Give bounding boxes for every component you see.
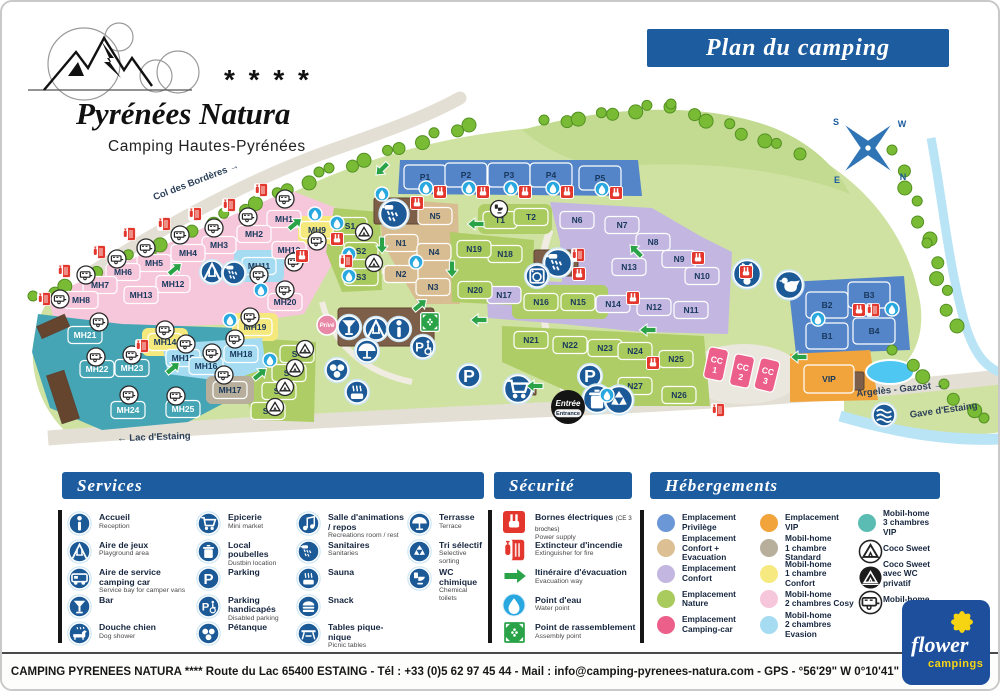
security-item: Bornes électriques (CE 3 broches)Power s… xyxy=(502,510,637,538)
power-supply-icon xyxy=(853,304,866,317)
security-legend-title: Sécurité xyxy=(494,472,632,499)
color-swatch xyxy=(760,590,778,608)
service-item: Douche chienDog shower xyxy=(66,620,192,648)
water-point-icon xyxy=(546,181,560,195)
water-point-icon xyxy=(330,216,344,230)
color-swatch xyxy=(760,514,778,532)
water-point-icon xyxy=(409,255,423,269)
water-point-icon xyxy=(308,207,322,221)
svg-text:N12: N12 xyxy=(646,302,662,312)
accommodation-item: Mobil-home 2 chambres Cosy xyxy=(760,587,854,613)
mobil-home-icon xyxy=(276,190,294,208)
svg-text:MH13: MH13 xyxy=(130,290,153,300)
fire-extinguisher-icon xyxy=(255,184,268,197)
tree-icon xyxy=(314,167,324,177)
plot-N18: N18 xyxy=(488,246,522,263)
svg-text:N25: N25 xyxy=(668,354,684,364)
color-swatch xyxy=(657,565,675,583)
plot-N21: N21 xyxy=(514,332,548,349)
evac-icon xyxy=(502,565,529,592)
park-icon: P xyxy=(195,565,222,592)
service-item: P Parking handicapésDisabled parking xyxy=(195,593,293,621)
prive-badge: Privé xyxy=(317,315,337,335)
logo-title: Pyrénées Natura xyxy=(76,96,290,132)
svg-text:MH21: MH21 xyxy=(74,330,97,340)
brand-line1: flower xyxy=(911,632,968,658)
color-swatch xyxy=(657,590,675,608)
svg-text:N4: N4 xyxy=(429,247,440,257)
plot-MH2: MH2 xyxy=(237,226,271,243)
fire-extinguisher-icon xyxy=(867,304,880,317)
fire-extinguisher-icon xyxy=(712,404,725,417)
plot-N1: N1 xyxy=(384,235,418,252)
picnic-icon xyxy=(295,620,322,647)
sanit-icon xyxy=(295,538,322,565)
tree-icon xyxy=(979,413,989,423)
svg-text:N16: N16 xyxy=(533,297,549,307)
color-swatch xyxy=(760,539,778,557)
tree-icon xyxy=(642,100,652,110)
tree-icon xyxy=(596,108,606,118)
camper-icon xyxy=(66,565,93,592)
security-item: Itinéraire d'évacuation Evacuation way xyxy=(502,565,637,593)
color-swatch xyxy=(657,514,675,532)
tree-icon xyxy=(539,115,549,125)
water-point-icon xyxy=(375,187,389,201)
water-point-icon xyxy=(342,269,356,283)
svg-text:N5: N5 xyxy=(430,211,441,221)
svg-text:N13: N13 xyxy=(621,262,637,272)
services-column-1: AccueilReception Aire de jeuxPlayground … xyxy=(66,510,192,648)
accommodation-item: Emplacement Camping-car xyxy=(657,612,757,638)
plot-N25: N25 xyxy=(659,351,693,368)
svg-text:N20: N20 xyxy=(467,285,483,295)
power-icon xyxy=(502,510,529,537)
water-icon xyxy=(502,593,529,620)
water-point-icon xyxy=(419,181,433,195)
svg-text:S3: S3 xyxy=(356,272,367,282)
tree-icon xyxy=(629,105,643,119)
plot-MH13: MH13 xyxy=(124,287,158,304)
svg-text:P: P xyxy=(463,366,475,386)
tree-icon xyxy=(429,128,439,138)
power-supply-icon xyxy=(573,268,586,281)
security-item: Point de rassemblement Assembly point xyxy=(502,620,637,648)
service-item: Pétanque xyxy=(195,620,293,648)
water-point-icon xyxy=(600,388,614,402)
coco-icon xyxy=(858,539,876,557)
plot-MH3: MH3 xyxy=(202,237,236,254)
svg-text:N14: N14 xyxy=(605,299,621,309)
svg-text:B2: B2 xyxy=(822,300,833,310)
mobil-home-icon xyxy=(90,313,108,331)
plot-N8: N8 xyxy=(636,234,670,251)
plot-N23: N23 xyxy=(588,340,622,357)
svg-text:P: P xyxy=(584,366,596,386)
tree-icon xyxy=(922,238,932,248)
phand-icon: P xyxy=(410,334,436,360)
tree-icon xyxy=(357,153,371,167)
plot-N5: N5 xyxy=(418,208,452,225)
svg-text:S2: S2 xyxy=(356,246,367,256)
brand-line2: campings xyxy=(928,658,983,670)
services-column-2: EpicerieMini market Local poubellesDustb… xyxy=(195,510,293,648)
tree-icon xyxy=(689,109,701,121)
svg-text:Entrée: Entrée xyxy=(556,399,581,408)
plot-N7: N7 xyxy=(605,217,639,234)
phand-icon: P xyxy=(195,593,222,620)
tree-icon xyxy=(735,128,747,140)
info-icon xyxy=(66,510,93,537)
tree-icon xyxy=(416,136,430,150)
plot-T2: T2 xyxy=(514,209,548,226)
power-supply-icon xyxy=(610,187,623,200)
tree-icon xyxy=(940,304,952,316)
svg-text:P: P xyxy=(415,340,424,355)
power-supply-icon xyxy=(477,186,490,199)
accommodation-item: Emplacement VIP xyxy=(760,510,854,536)
mobil-home-icon xyxy=(250,266,268,284)
plot-N13: N13 xyxy=(612,259,646,276)
mobil-home-icon xyxy=(177,335,195,353)
park-icon: P xyxy=(456,363,482,389)
mobil-home-icon xyxy=(241,308,259,326)
svg-text:MH16: MH16 xyxy=(195,361,218,371)
mh-icon xyxy=(858,590,876,608)
plot-MH18: MH18 xyxy=(224,346,258,363)
legend-divider xyxy=(488,510,492,643)
svg-text:P4: P4 xyxy=(546,170,557,180)
plot-N22: N22 xyxy=(553,337,587,354)
plot-MH5: MH5 xyxy=(137,255,171,272)
tree-icon xyxy=(393,143,405,155)
svg-text:B4: B4 xyxy=(869,326,880,336)
mobil-home-icon xyxy=(51,290,69,308)
svg-text:N9: N9 xyxy=(674,254,685,264)
svg-text:T2: T2 xyxy=(526,212,536,222)
sauna-icon xyxy=(344,379,370,405)
ext-icon xyxy=(502,538,529,565)
tree-icon xyxy=(666,99,676,109)
mobil-home-icon xyxy=(167,387,185,405)
plot-MH4: MH4 xyxy=(171,245,205,262)
svg-text:P3: P3 xyxy=(504,170,515,180)
power-supply-icon xyxy=(411,197,424,210)
service-item: EpicerieMini market xyxy=(195,510,293,538)
power-supply-icon xyxy=(692,252,705,265)
tree-icon xyxy=(771,138,781,148)
mobil-home-icon xyxy=(226,330,244,348)
plot-N26: N26 xyxy=(662,387,696,404)
power-supply-icon xyxy=(740,266,753,279)
wc-icon xyxy=(491,201,508,218)
hen-icon xyxy=(773,269,804,300)
coco-sweet-icon xyxy=(277,379,294,396)
coco-sweet-icon xyxy=(366,255,383,272)
anim-icon xyxy=(295,510,322,537)
accommodation-item: Mobil-home 1 chambre Confort xyxy=(760,561,854,587)
mobil-home-icon xyxy=(276,281,294,299)
svg-text:Privé: Privé xyxy=(320,323,335,329)
road-label: ← Lac d'Estaing xyxy=(117,431,191,445)
plot-MH12: MH12 xyxy=(156,276,190,293)
tree-icon xyxy=(758,134,772,148)
tree-icon xyxy=(932,257,944,269)
water-point-icon xyxy=(462,181,476,195)
wash-icon xyxy=(524,263,550,289)
svg-text:N26: N26 xyxy=(671,390,687,400)
svg-text:P5: P5 xyxy=(595,173,606,183)
terr-icon xyxy=(354,338,380,364)
tree-icon xyxy=(324,163,334,173)
sanit-icon xyxy=(378,198,409,229)
svg-text:MH17: MH17 xyxy=(219,385,242,395)
svg-text:B3: B3 xyxy=(864,290,875,300)
services-column-3: Salle d'animations / reposRecreations ro… xyxy=(295,510,405,648)
plot-N9: N9 xyxy=(662,251,696,268)
tree-icon xyxy=(898,181,912,195)
tree-icon xyxy=(950,319,964,333)
color-swatch xyxy=(657,616,675,634)
water-point-icon xyxy=(595,182,609,196)
color-swatch xyxy=(760,616,778,634)
pond xyxy=(866,360,914,384)
wc-icon xyxy=(406,565,433,592)
accommodation-item: Emplacement Privilège xyxy=(657,510,757,536)
site-logo: * * * * Pyrénées Natura Camping Hautes-P… xyxy=(24,12,324,162)
power-supply-icon xyxy=(561,186,574,199)
svg-text:N8: N8 xyxy=(648,237,659,247)
accommodations-column-3: Mobil-home 3 chambres VIPCoco SweetCoco … xyxy=(858,510,940,612)
plan-title-banner: Plan du camping xyxy=(647,29,949,67)
tree-icon xyxy=(907,359,919,371)
security-item: Extincteur d'incendie Extinguisher for f… xyxy=(502,538,637,566)
mobil-home-icon xyxy=(203,344,221,362)
accommodation-item: Mobil-home 3 chambres VIP xyxy=(858,510,940,536)
svg-text:N21: N21 xyxy=(523,335,539,345)
service-item: Salle d'animations / reposRecreations ro… xyxy=(295,510,405,538)
color-swatch xyxy=(657,539,675,557)
svg-text:W: W xyxy=(898,119,907,129)
water-point-icon xyxy=(263,353,277,367)
svg-text:N17: N17 xyxy=(496,290,512,300)
svg-text:S: S xyxy=(833,117,839,127)
bar-icon xyxy=(336,314,362,340)
accommodation-item: Emplacement Confort + Evacuation xyxy=(657,536,757,562)
svg-text:N6: N6 xyxy=(572,215,583,225)
svg-text:P: P xyxy=(202,601,210,613)
svg-text:MH12: MH12 xyxy=(162,279,185,289)
service-item: Tri sélectifSelective sorting xyxy=(406,538,486,566)
svg-text:N3: N3 xyxy=(428,282,439,292)
plot-N11: N11 xyxy=(674,302,708,319)
tree-icon xyxy=(28,291,38,301)
river xyxy=(931,138,1000,373)
plot-N15: N15 xyxy=(561,294,595,311)
svg-text:N1: N1 xyxy=(396,238,407,248)
mobil-home-icon xyxy=(120,386,138,404)
svg-text:B1: B1 xyxy=(822,331,833,341)
fire-extinguisher-icon xyxy=(223,199,236,212)
security-item: Point d'eau Water point xyxy=(502,593,637,621)
fire-extinguisher-icon xyxy=(136,340,149,353)
service-item: Snack xyxy=(295,593,405,621)
svg-text:MH3: MH3 xyxy=(210,240,228,250)
power-supply-icon xyxy=(647,357,660,370)
accommodation-item: Mobil-home 1 chambre Standard xyxy=(760,536,854,562)
mobil-home-icon xyxy=(308,232,326,250)
pet-icon xyxy=(324,357,350,383)
svg-text:N15: N15 xyxy=(570,297,586,307)
tree-icon xyxy=(930,272,944,286)
plot-N6: N6 xyxy=(560,212,594,229)
svg-text:N2: N2 xyxy=(396,269,407,279)
svg-text:MH7: MH7 xyxy=(91,280,109,290)
fire-extinguisher-icon xyxy=(58,265,71,278)
service-item: WC chimiqueChemical toilets xyxy=(406,565,486,593)
tree-icon xyxy=(887,145,897,155)
info-icon xyxy=(386,316,412,342)
service-item: Tables pique-niquePicnic tables xyxy=(295,620,405,648)
pet-icon xyxy=(195,620,222,647)
mobil-home-icon xyxy=(215,366,233,384)
fire-extinguisher-icon xyxy=(572,249,585,262)
tree-icon xyxy=(794,148,806,160)
accommodation-item: Emplacement Nature xyxy=(657,587,757,613)
svg-text:MH5: MH5 xyxy=(145,258,163,268)
service-item: SanitairesSanitaries xyxy=(295,538,405,566)
logo-subtitle: Camping Hautes-Pyrénées xyxy=(108,138,306,156)
svg-text:N24: N24 xyxy=(627,346,643,356)
service-item: P Parking xyxy=(195,565,293,593)
tree-icon xyxy=(912,216,924,228)
svg-text:MH18: MH18 xyxy=(230,349,253,359)
wave-icon xyxy=(871,402,897,428)
accommodations-legend-title: Hébergements xyxy=(650,472,940,499)
mobil-home-icon xyxy=(205,219,223,237)
svg-text:N22: N22 xyxy=(562,340,578,350)
svg-text:N19: N19 xyxy=(466,244,482,254)
tree-icon xyxy=(699,114,713,128)
bar-icon xyxy=(66,593,93,620)
fire-extinguisher-icon xyxy=(340,255,353,268)
mobil-home-icon xyxy=(239,208,257,226)
mobil-home-icon xyxy=(171,226,189,244)
cart-icon xyxy=(502,373,533,404)
svg-text:VIP: VIP xyxy=(822,374,836,384)
mobil-home-icon xyxy=(87,348,105,366)
mobil-home-icon xyxy=(156,321,174,339)
mobil-home-icon xyxy=(108,250,126,268)
tree-icon xyxy=(462,118,476,132)
service-item: AccueilReception xyxy=(66,510,192,538)
svg-text:MH2: MH2 xyxy=(245,229,263,239)
play-icon xyxy=(66,538,93,565)
tree-icon xyxy=(302,176,316,190)
dog-icon xyxy=(66,620,93,647)
water-point-icon xyxy=(254,283,268,297)
footer-address: CAMPING PYRENEES NATURA **** Route du La… xyxy=(2,652,998,689)
svg-text:MH8: MH8 xyxy=(72,295,90,305)
plot-N14: N14 xyxy=(596,296,630,313)
trash-icon xyxy=(195,538,222,565)
svg-text:MH1: MH1 xyxy=(275,214,293,224)
svg-text:Entrance: Entrance xyxy=(556,411,580,417)
plot-N20: N20 xyxy=(458,282,492,299)
service-item: TerrasseTerrace xyxy=(406,510,486,538)
snack-icon xyxy=(295,593,322,620)
entrance-badge: Entrée Entrance xyxy=(551,390,585,424)
fire-extinguisher-icon xyxy=(123,228,136,241)
svg-text:S1: S1 xyxy=(345,221,356,231)
terr-icon xyxy=(406,510,433,537)
tree-icon xyxy=(887,345,897,355)
svg-text:N7: N7 xyxy=(617,220,628,230)
tree-icon xyxy=(725,119,735,129)
svg-text:N: N xyxy=(900,172,907,182)
svg-text:N11: N11 xyxy=(683,305,698,315)
fire-extinguisher-icon xyxy=(38,293,51,306)
svg-text:N23: N23 xyxy=(597,343,613,353)
tri-icon xyxy=(406,538,433,565)
fire-extinguisher-icon xyxy=(189,208,202,221)
water-point-icon xyxy=(504,181,518,195)
coco-sweet-icon xyxy=(297,341,314,358)
plot-MH17: MH17 xyxy=(213,382,247,399)
water-point-icon xyxy=(885,302,899,316)
service-item: Aire de jeuxPlayground area xyxy=(66,538,192,566)
svg-text:MH4: MH4 xyxy=(179,248,197,258)
service-item: Sauna xyxy=(295,565,405,593)
tree-icon xyxy=(383,145,393,155)
service-item: Aire de service camping carService bay f… xyxy=(66,565,192,593)
camping-plan-page: MH1 MH2 MH3 MH4 MH5 MH6 MH7 MH8 MH9 MH10… xyxy=(0,0,1000,691)
power-supply-icon xyxy=(434,186,447,199)
power-supply-icon xyxy=(296,250,309,263)
accommodation-item: Emplacement Confort xyxy=(657,561,757,587)
plot-VIP: VIP xyxy=(804,365,854,393)
plot-N16: N16 xyxy=(524,294,558,311)
water-point-icon xyxy=(223,313,237,327)
mobil-home-icon xyxy=(77,266,95,284)
accommodations-column-1: Emplacement PrivilègeEmplacement Confort… xyxy=(657,510,757,638)
services-column-4: TerrasseTerrace Tri sélectifSelective so… xyxy=(406,510,486,593)
svg-text:MH24: MH24 xyxy=(117,405,140,415)
plot-B1: B1 xyxy=(806,323,848,349)
plot-N3: N3 xyxy=(416,279,450,296)
assembly-icon xyxy=(502,620,529,647)
fire-extinguisher-icon xyxy=(93,246,106,259)
accommodation-item: Coco Sweet xyxy=(858,536,940,562)
accommodation-item: Mobil-home 2 chambres Evasion xyxy=(760,612,854,638)
plot-N12: N12 xyxy=(637,299,671,316)
svg-text:P: P xyxy=(203,571,213,588)
cocop-icon xyxy=(858,565,876,583)
coco-sweet-icon xyxy=(267,399,284,416)
svg-text:P2: P2 xyxy=(461,170,472,180)
sanit-icon xyxy=(221,260,247,286)
svg-text:N10: N10 xyxy=(694,271,710,281)
coco-sweet-icon xyxy=(356,224,373,241)
tree-icon xyxy=(571,112,585,126)
tree-icon xyxy=(607,108,619,120)
svg-text:E: E xyxy=(834,175,840,185)
sauna-icon xyxy=(295,565,322,592)
service-item: Local poubellesDustbin location xyxy=(195,538,293,566)
plot-N19: N19 xyxy=(457,241,491,258)
water-point-icon xyxy=(811,312,825,326)
logo-stars: * * * * xyxy=(224,64,312,96)
